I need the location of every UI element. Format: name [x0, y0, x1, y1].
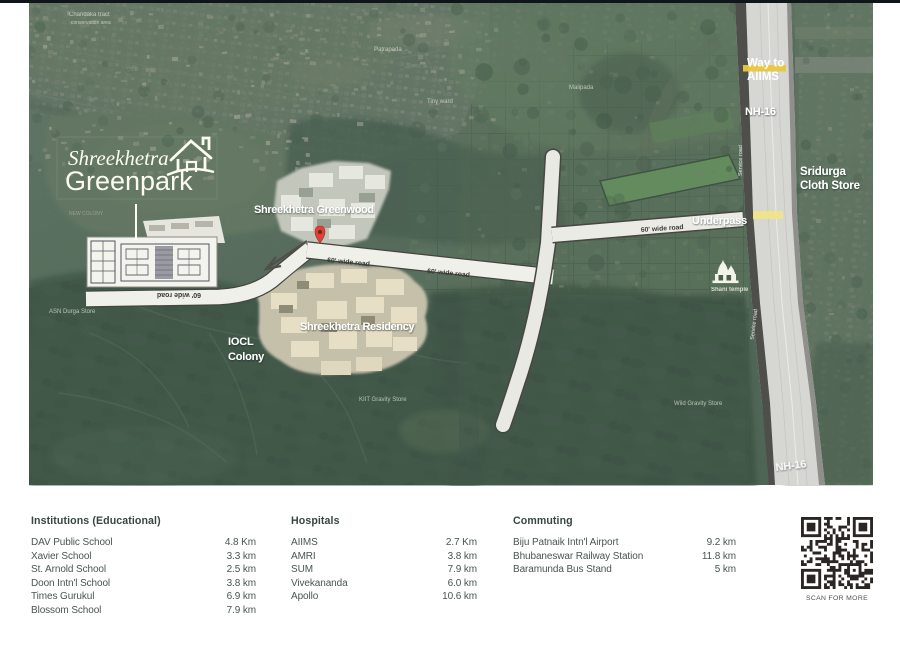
svg-text:Wild Gravity Store: Wild Gravity Store: [674, 401, 723, 407]
svg-text:AIIMS: AIIMS: [747, 71, 779, 83]
svg-text:Tiny ward: Tiny ward: [427, 99, 453, 105]
svg-text:ASN Durga Store: ASN Durga Store: [49, 309, 96, 315]
svg-text:Greenpark: Greenpark: [65, 166, 193, 196]
svg-text:Colony: Colony: [228, 351, 265, 363]
svg-text:Patrapada: Patrapada: [374, 47, 402, 53]
svg-text:Cloth Store: Cloth Store: [800, 180, 860, 192]
svg-text:Service road: Service road: [738, 145, 744, 176]
svg-text:Way to: Way to: [747, 58, 784, 70]
svg-text:IOCL: IOCL: [228, 336, 254, 348]
svg-text:Chandaka tract: Chandaka tract: [69, 12, 110, 18]
svg-text:KIIT Gravity Store: KIIT Gravity Store: [359, 397, 407, 403]
svg-text:Malipada: Malipada: [569, 85, 594, 91]
svg-text:60' wide road: 60' wide road: [157, 291, 201, 298]
svg-text:Shreekhetra Greenwood: Shreekhetra Greenwood: [254, 204, 374, 216]
svg-text:Shreekhetra Residency: Shreekhetra Residency: [300, 321, 416, 333]
svg-text:Sridurga: Sridurga: [800, 166, 846, 178]
svg-text:NH-16: NH-16: [745, 106, 776, 118]
svg-text:Shani temple: Shani temple: [711, 287, 749, 293]
svg-text:conservation area: conservation area: [71, 20, 111, 26]
svg-text:Underpass: Underpass: [692, 215, 747, 227]
svg-text:NEW COLONY: NEW COLONY: [69, 211, 104, 217]
